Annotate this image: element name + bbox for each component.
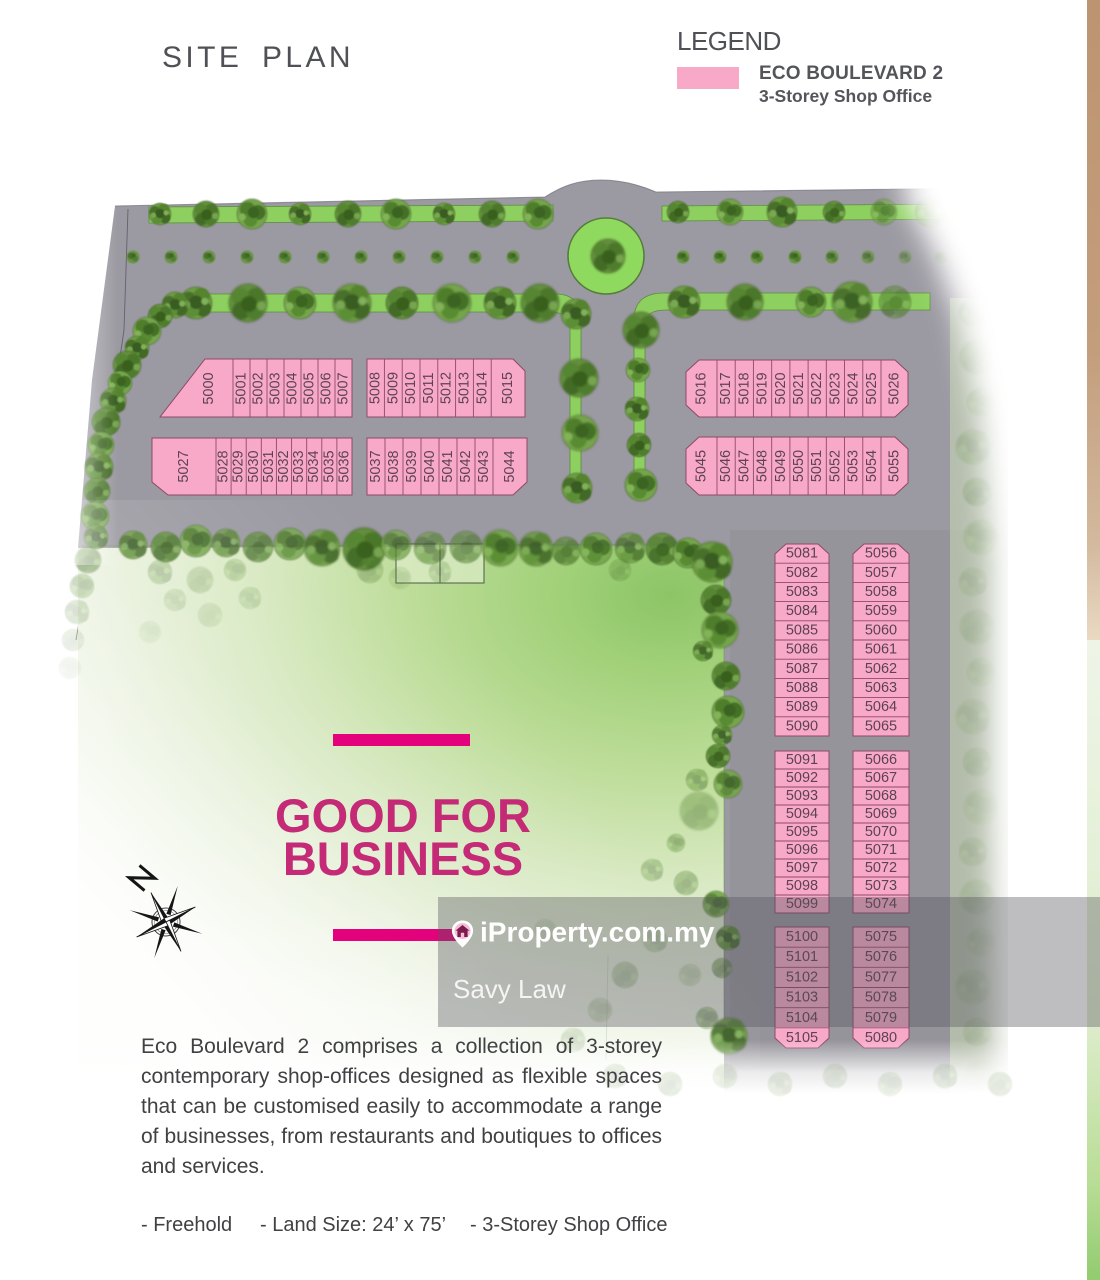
svg-text:5035: 5035 xyxy=(321,450,337,482)
svg-text:5064: 5064 xyxy=(865,699,897,715)
svg-text:5069: 5069 xyxy=(865,806,897,822)
svg-text:5087: 5087 xyxy=(786,661,818,677)
svg-text:5015: 5015 xyxy=(500,372,516,404)
svg-text:5044: 5044 xyxy=(502,450,518,482)
svg-text:5023: 5023 xyxy=(827,372,843,404)
svg-text:5006: 5006 xyxy=(319,372,335,404)
svg-text:5072: 5072 xyxy=(865,860,897,876)
svg-text:5014: 5014 xyxy=(474,372,490,404)
svg-text:5027: 5027 xyxy=(176,450,192,482)
svg-text:5063: 5063 xyxy=(865,680,897,696)
svg-text:5067: 5067 xyxy=(865,770,897,786)
svg-text:5082: 5082 xyxy=(786,565,818,581)
svg-text:5084: 5084 xyxy=(786,603,818,619)
svg-text:5070: 5070 xyxy=(865,824,897,840)
svg-text:5041: 5041 xyxy=(440,450,456,482)
svg-text:5002: 5002 xyxy=(251,372,267,404)
svg-text:5097: 5097 xyxy=(786,860,818,876)
svg-text:5052: 5052 xyxy=(827,450,843,482)
svg-text:5004: 5004 xyxy=(285,372,301,404)
svg-text:5065: 5065 xyxy=(865,718,897,734)
svg-text:5046: 5046 xyxy=(718,450,734,482)
svg-text:5021: 5021 xyxy=(791,372,807,404)
svg-text:5032: 5032 xyxy=(276,450,292,482)
svg-text:5010: 5010 xyxy=(403,372,419,404)
svg-text:5042: 5042 xyxy=(458,450,474,482)
svg-text:5018: 5018 xyxy=(736,372,752,404)
svg-text:5055: 5055 xyxy=(887,450,903,482)
svg-text:5060: 5060 xyxy=(865,622,897,638)
svg-text:5040: 5040 xyxy=(422,450,438,482)
svg-text:5081: 5081 xyxy=(786,546,818,562)
svg-text:5033: 5033 xyxy=(291,450,307,482)
svg-text:5036: 5036 xyxy=(336,450,352,482)
svg-text:5054: 5054 xyxy=(864,450,880,482)
svg-text:5003: 5003 xyxy=(268,372,284,404)
svg-text:5094: 5094 xyxy=(786,806,818,822)
svg-text:5086: 5086 xyxy=(786,642,818,658)
svg-text:5022: 5022 xyxy=(809,372,825,404)
svg-text:5061: 5061 xyxy=(865,642,897,658)
svg-text:5071: 5071 xyxy=(865,842,897,858)
svg-text:5007: 5007 xyxy=(336,372,352,404)
svg-text:5090: 5090 xyxy=(786,718,818,734)
svg-text:5092: 5092 xyxy=(786,770,818,786)
svg-text:5048: 5048 xyxy=(755,450,771,482)
svg-text:5001: 5001 xyxy=(234,372,250,404)
svg-text:5089: 5089 xyxy=(786,699,818,715)
svg-text:Savy Law: Savy Law xyxy=(453,974,566,1004)
svg-text:5011: 5011 xyxy=(421,372,437,403)
svg-text:5096: 5096 xyxy=(786,842,818,858)
svg-text:5095: 5095 xyxy=(786,824,818,840)
svg-text:5017: 5017 xyxy=(718,372,734,404)
svg-text:5049: 5049 xyxy=(773,450,789,482)
svg-text:5024: 5024 xyxy=(846,372,862,404)
svg-text:5013: 5013 xyxy=(457,372,473,404)
svg-text:5066: 5066 xyxy=(865,752,897,768)
svg-text:5083: 5083 xyxy=(786,584,818,600)
svg-text:5073: 5073 xyxy=(865,878,897,894)
svg-text:5045: 5045 xyxy=(694,450,710,482)
svg-text:5005: 5005 xyxy=(302,372,318,404)
svg-text:5093: 5093 xyxy=(786,788,818,804)
svg-text:5029: 5029 xyxy=(231,450,247,482)
svg-text:5012: 5012 xyxy=(439,372,455,404)
svg-text:5050: 5050 xyxy=(791,450,807,482)
svg-text:5056: 5056 xyxy=(865,546,897,562)
svg-text:5019: 5019 xyxy=(755,372,771,404)
svg-text:5009: 5009 xyxy=(385,372,401,404)
svg-text:5057: 5057 xyxy=(865,565,897,581)
svg-text:5038: 5038 xyxy=(386,450,402,482)
svg-text:5085: 5085 xyxy=(786,622,818,638)
svg-text:5020: 5020 xyxy=(773,372,789,404)
svg-text:5008: 5008 xyxy=(368,372,384,404)
svg-text:5051: 5051 xyxy=(809,450,825,482)
svg-text:5053: 5053 xyxy=(846,450,862,482)
svg-text:5088: 5088 xyxy=(786,680,818,696)
svg-text:5031: 5031 xyxy=(261,450,277,482)
svg-text:5026: 5026 xyxy=(887,372,903,404)
svg-text:5039: 5039 xyxy=(404,450,420,482)
svg-text:5062: 5062 xyxy=(865,661,897,677)
svg-text:5030: 5030 xyxy=(246,450,262,482)
svg-text:5025: 5025 xyxy=(864,372,880,404)
svg-text:5098: 5098 xyxy=(786,878,818,894)
svg-text:5000: 5000 xyxy=(201,372,217,404)
svg-text:5043: 5043 xyxy=(476,450,492,482)
svg-text:5016: 5016 xyxy=(694,372,710,404)
svg-text:5028: 5028 xyxy=(216,450,232,482)
svg-text:iProperty.com.my: iProperty.com.my xyxy=(480,917,715,948)
svg-text:5058: 5058 xyxy=(865,584,897,600)
svg-text:5047: 5047 xyxy=(736,450,752,482)
svg-text:5068: 5068 xyxy=(865,788,897,804)
svg-text:5091: 5091 xyxy=(786,752,818,768)
svg-text:5037: 5037 xyxy=(368,450,384,482)
svg-text:5059: 5059 xyxy=(865,603,897,619)
svg-text:5034: 5034 xyxy=(306,450,322,482)
